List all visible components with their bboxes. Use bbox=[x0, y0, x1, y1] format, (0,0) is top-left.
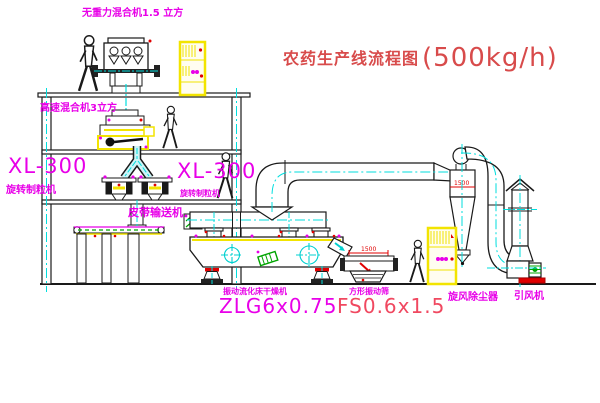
title-capacity: (500kg/h) bbox=[422, 47, 558, 69]
label-granulator-left-model: XL-300 bbox=[8, 155, 87, 177]
label-granulator-left-name: 旋转制粒机 bbox=[6, 186, 56, 197]
high-speed-mixer bbox=[98, 110, 154, 149]
label-high-speed-mixer: 高速混合机3立方 bbox=[40, 104, 117, 115]
person-icon bbox=[410, 240, 424, 282]
label-granulator-center-name: 旋转制粒机 bbox=[180, 190, 220, 198]
granulator-right bbox=[138, 175, 172, 200]
fluid-bed-dryer bbox=[184, 212, 343, 284]
sieve-dimension: 1500 bbox=[361, 246, 376, 253]
belt-conveyor bbox=[74, 227, 164, 283]
label-granulator-center-model: XL-300 bbox=[177, 160, 256, 182]
process-flow-diagram: 1500 1500 bbox=[0, 0, 600, 403]
control-cabinet-lower bbox=[428, 228, 456, 284]
exhaust-duct bbox=[252, 160, 452, 220]
label-gravity-mixer: 无重力混合机1.5 立方 bbox=[82, 9, 183, 20]
label-fan: 引风机 bbox=[514, 292, 544, 303]
gravity-free-mixer bbox=[92, 38, 160, 112]
label-cyclone: 旋风除尘器 bbox=[448, 293, 498, 304]
dryer-foot-right bbox=[311, 266, 333, 284]
page-title: 农药生产线流程图 (500kg/h) bbox=[283, 45, 558, 69]
control-cabinet-upper bbox=[180, 42, 205, 95]
label-dryer-model: ZLG6x0.75 bbox=[219, 296, 337, 317]
label-sieve-model: FS0.6x1.5 bbox=[337, 296, 445, 317]
title-text: 农药生产线流程图 bbox=[283, 45, 419, 69]
person-icon bbox=[163, 106, 177, 148]
granulator-left bbox=[102, 175, 136, 200]
label-belt-conveyor: 皮带输送机 bbox=[128, 207, 183, 219]
vibrating-sieve: 1500 bbox=[328, 238, 398, 282]
person-icon bbox=[79, 36, 97, 91]
dryer-foot-left bbox=[201, 266, 223, 284]
